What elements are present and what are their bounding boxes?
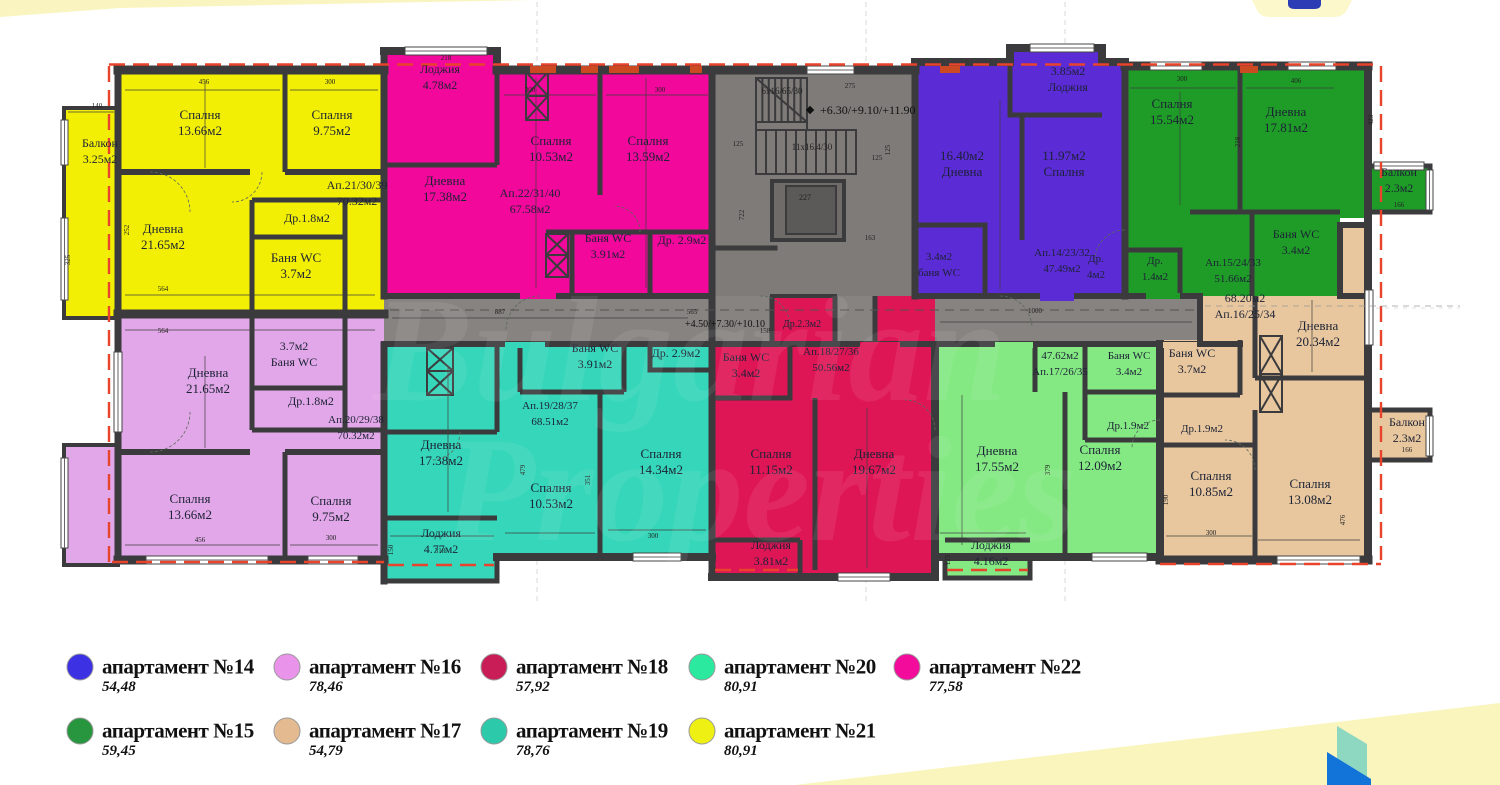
svg-text:Спалня: Спалня xyxy=(311,493,352,508)
svg-text:9.75м2: 9.75м2 xyxy=(312,509,349,524)
svg-text:Дневна: Дневна xyxy=(1266,104,1307,119)
svg-text:21.65м2: 21.65м2 xyxy=(186,381,230,396)
svg-text:2.3м2: 2.3м2 xyxy=(1393,431,1422,445)
svg-text:67.58м2: 67.58м2 xyxy=(510,202,551,216)
svg-text:3.7м2: 3.7м2 xyxy=(281,266,312,281)
svg-text:Спалня: Спалня xyxy=(1290,476,1331,491)
svg-text:Дневна: Дневна xyxy=(1298,318,1339,333)
svg-text:564: 564 xyxy=(158,327,169,335)
svg-text:Дневна: Дневна xyxy=(188,365,229,380)
svg-text:77,58: 77,58 xyxy=(929,679,963,695)
svg-text:300: 300 xyxy=(1206,529,1217,537)
svg-text:13.59м2: 13.59м2 xyxy=(626,149,670,164)
svg-text:Спалня: Спалня xyxy=(628,133,669,148)
svg-text:47.62м2: 47.62м2 xyxy=(1041,350,1078,362)
svg-text:3.4м2: 3.4м2 xyxy=(926,251,952,263)
svg-text:166: 166 xyxy=(1402,446,1413,454)
svg-text:Балкон: Балкон xyxy=(1381,165,1418,179)
svg-text:13.08м2: 13.08м2 xyxy=(1288,492,1332,507)
svg-text:Баня WC: Баня WC xyxy=(1273,227,1320,241)
svg-text:218: 218 xyxy=(1234,136,1242,147)
svg-text:54,48: 54,48 xyxy=(102,679,136,695)
svg-text:Балкон: Балкон xyxy=(1389,415,1426,429)
svg-text:456: 456 xyxy=(199,78,210,86)
svg-text:апартамент №18: апартамент №18 xyxy=(516,655,668,679)
svg-text:Ап.15/24/33: Ап.15/24/33 xyxy=(1205,257,1261,269)
svg-text:3.25м2: 3.25м2 xyxy=(83,152,118,166)
svg-text:4.78м2: 4.78м2 xyxy=(423,78,458,92)
svg-text:47.49м2: 47.49м2 xyxy=(1043,263,1080,275)
svg-text:1000: 1000 xyxy=(1028,307,1043,315)
svg-text:Properties: Properties xyxy=(442,407,1076,573)
svg-text:Др.: Др. xyxy=(1088,253,1104,265)
svg-text:апартамент №16: апартамент №16 xyxy=(309,655,461,679)
svg-text:Спалня: Спалня xyxy=(180,107,221,122)
svg-text:Баня WC: Баня WC xyxy=(271,250,321,265)
svg-text:456: 456 xyxy=(195,536,206,544)
svg-text:Дневна: Дневна xyxy=(143,221,184,236)
svg-text:Дневна: Дневна xyxy=(425,173,466,188)
svg-text:Др.1.9м2: Др.1.9м2 xyxy=(1107,420,1149,432)
svg-text:325: 325 xyxy=(64,254,72,265)
svg-text:218: 218 xyxy=(441,54,452,62)
svg-text:11x16.4/30: 11x16.4/30 xyxy=(792,142,833,152)
svg-text:3.4м2: 3.4м2 xyxy=(1282,243,1311,257)
svg-text:300: 300 xyxy=(1177,75,1188,83)
svg-text:3.91м2: 3.91м2 xyxy=(591,247,626,261)
svg-text:125: 125 xyxy=(733,140,744,148)
svg-text:722: 722 xyxy=(738,209,746,220)
svg-text:апартамент №22: апартамент №22 xyxy=(929,655,1081,679)
svg-text:Баня WC: Баня WC xyxy=(1169,346,1216,360)
svg-text:150: 150 xyxy=(387,544,395,555)
svg-text:190: 190 xyxy=(1162,494,1170,505)
svg-text:Ап.17/26/35: Ап.17/26/35 xyxy=(1032,366,1088,378)
svg-text:Ап.14/23/32: Ап.14/23/32 xyxy=(1034,247,1090,259)
svg-text:Др.: Др. xyxy=(1147,255,1163,267)
svg-text:21.65м2: 21.65м2 xyxy=(141,237,185,252)
svg-text:300: 300 xyxy=(325,78,336,86)
svg-text:13.66м2: 13.66м2 xyxy=(178,123,222,138)
svg-text:Ап.16/25/34: Ап.16/25/34 xyxy=(1215,307,1276,321)
svg-text:апартамент №19: апартамент №19 xyxy=(516,719,668,743)
svg-text:3.7м2: 3.7м2 xyxy=(280,339,309,353)
svg-text:Спалня: Спалня xyxy=(1044,164,1085,179)
svg-text:54,79: 54,79 xyxy=(309,743,343,759)
svg-text:227: 227 xyxy=(799,193,811,202)
svg-text:Лоджия: Лоджия xyxy=(420,62,460,76)
svg-text:Балкон: Балкон xyxy=(82,136,119,150)
svg-text:140: 140 xyxy=(92,102,103,110)
svg-text:1.4м2: 1.4м2 xyxy=(1142,271,1168,283)
svg-text:125: 125 xyxy=(884,144,892,155)
svg-text:300: 300 xyxy=(326,534,337,542)
svg-text:300: 300 xyxy=(655,86,666,94)
svg-text:Спалня: Спалня xyxy=(1080,442,1121,457)
svg-text:80,91: 80,91 xyxy=(724,679,758,695)
svg-text:564: 564 xyxy=(158,285,169,293)
svg-text:3.4м2: 3.4м2 xyxy=(1116,366,1142,378)
svg-text:Спалня: Спалня xyxy=(312,107,353,122)
svg-text:57,92: 57,92 xyxy=(516,679,550,695)
svg-text:3.85м2: 3.85м2 xyxy=(1051,64,1086,78)
svg-text:Др.1.8м2: Др.1.8м2 xyxy=(284,211,330,225)
svg-text:Ап.22/31/40: Ап.22/31/40 xyxy=(500,186,561,200)
svg-text:9.75м2: 9.75м2 xyxy=(313,123,350,138)
svg-text:80,91: 80,91 xyxy=(724,743,758,759)
svg-text:163: 163 xyxy=(865,234,876,242)
svg-text:20.34м2: 20.34м2 xyxy=(1296,334,1340,349)
svg-text:апартамент №17: апартамент №17 xyxy=(309,719,461,743)
svg-text:4м2: 4м2 xyxy=(1087,269,1105,281)
svg-text:Др.1.9м2: Др.1.9м2 xyxy=(1181,423,1223,435)
svg-text:Др. 2.9м2: Др. 2.9м2 xyxy=(658,233,707,247)
svg-text:Спалня: Спалня xyxy=(1152,96,1193,111)
svg-text:Др.1.8м2: Др.1.8м2 xyxy=(288,394,334,408)
svg-text:68.20м2: 68.20м2 xyxy=(1225,291,1266,305)
svg-text:Баня WC: Баня WC xyxy=(1108,350,1151,362)
svg-text:16.40м2: 16.40м2 xyxy=(940,148,984,163)
svg-text:10.53м2: 10.53м2 xyxy=(529,149,573,164)
svg-text:6x16/65/30: 6x16/65/30 xyxy=(761,86,803,96)
svg-text:2.3м2: 2.3м2 xyxy=(1385,181,1414,195)
svg-text:423: 423 xyxy=(1367,114,1375,125)
svg-text:275: 275 xyxy=(845,82,856,90)
svg-text:Спалня: Спалня xyxy=(1191,468,1232,483)
svg-text:125: 125 xyxy=(872,154,883,162)
svg-text:апартамент №21: апартамент №21 xyxy=(724,719,876,743)
svg-text:Спалня: Спалня xyxy=(531,133,572,148)
svg-text:Дневна: Дневна xyxy=(942,164,983,179)
svg-text:70.32м2: 70.32м2 xyxy=(337,194,378,208)
svg-text:11.97м2: 11.97м2 xyxy=(1042,148,1086,163)
svg-text:апартамент №20: апартамент №20 xyxy=(724,655,876,679)
svg-text:59,45: 59,45 xyxy=(102,743,136,759)
svg-text:13.66м2: 13.66м2 xyxy=(168,507,212,522)
svg-text:12.09м2: 12.09м2 xyxy=(1078,458,1122,473)
svg-text:406: 406 xyxy=(1291,77,1302,85)
svg-text:Спалня: Спалня xyxy=(170,491,211,506)
svg-text:15.54м2: 15.54м2 xyxy=(1150,112,1194,127)
svg-text:51.66м2: 51.66м2 xyxy=(1214,273,1251,285)
svg-text:78,46: 78,46 xyxy=(309,679,343,695)
svg-text:300: 300 xyxy=(525,86,536,94)
svg-text:70.32м2: 70.32м2 xyxy=(337,430,374,442)
svg-text:апартамент №15: апартамент №15 xyxy=(102,719,254,743)
svg-text:Баня WC: Баня WC xyxy=(585,231,632,245)
svg-text:17.81м2: 17.81м2 xyxy=(1264,120,1308,135)
svg-text:78,76: 78,76 xyxy=(516,743,550,759)
svg-text:апартамент №14: апартамент №14 xyxy=(102,655,255,679)
svg-text:3.7м2: 3.7м2 xyxy=(1178,362,1207,376)
svg-text:Лоджия: Лоджия xyxy=(1048,80,1088,94)
svg-text:10.85м2: 10.85м2 xyxy=(1189,484,1233,499)
svg-text:476: 476 xyxy=(1339,514,1347,525)
svg-text:252: 252 xyxy=(123,224,131,235)
svg-text:+6.30/+9.10/+11.90: +6.30/+9.10/+11.90 xyxy=(820,103,916,117)
svg-text:166: 166 xyxy=(1394,201,1405,209)
svg-text:17.38м2: 17.38м2 xyxy=(423,189,467,204)
svg-text:Баня WC: Баня WC xyxy=(271,355,318,369)
svg-text:Ап.21/30/39: Ап.21/30/39 xyxy=(327,178,388,192)
